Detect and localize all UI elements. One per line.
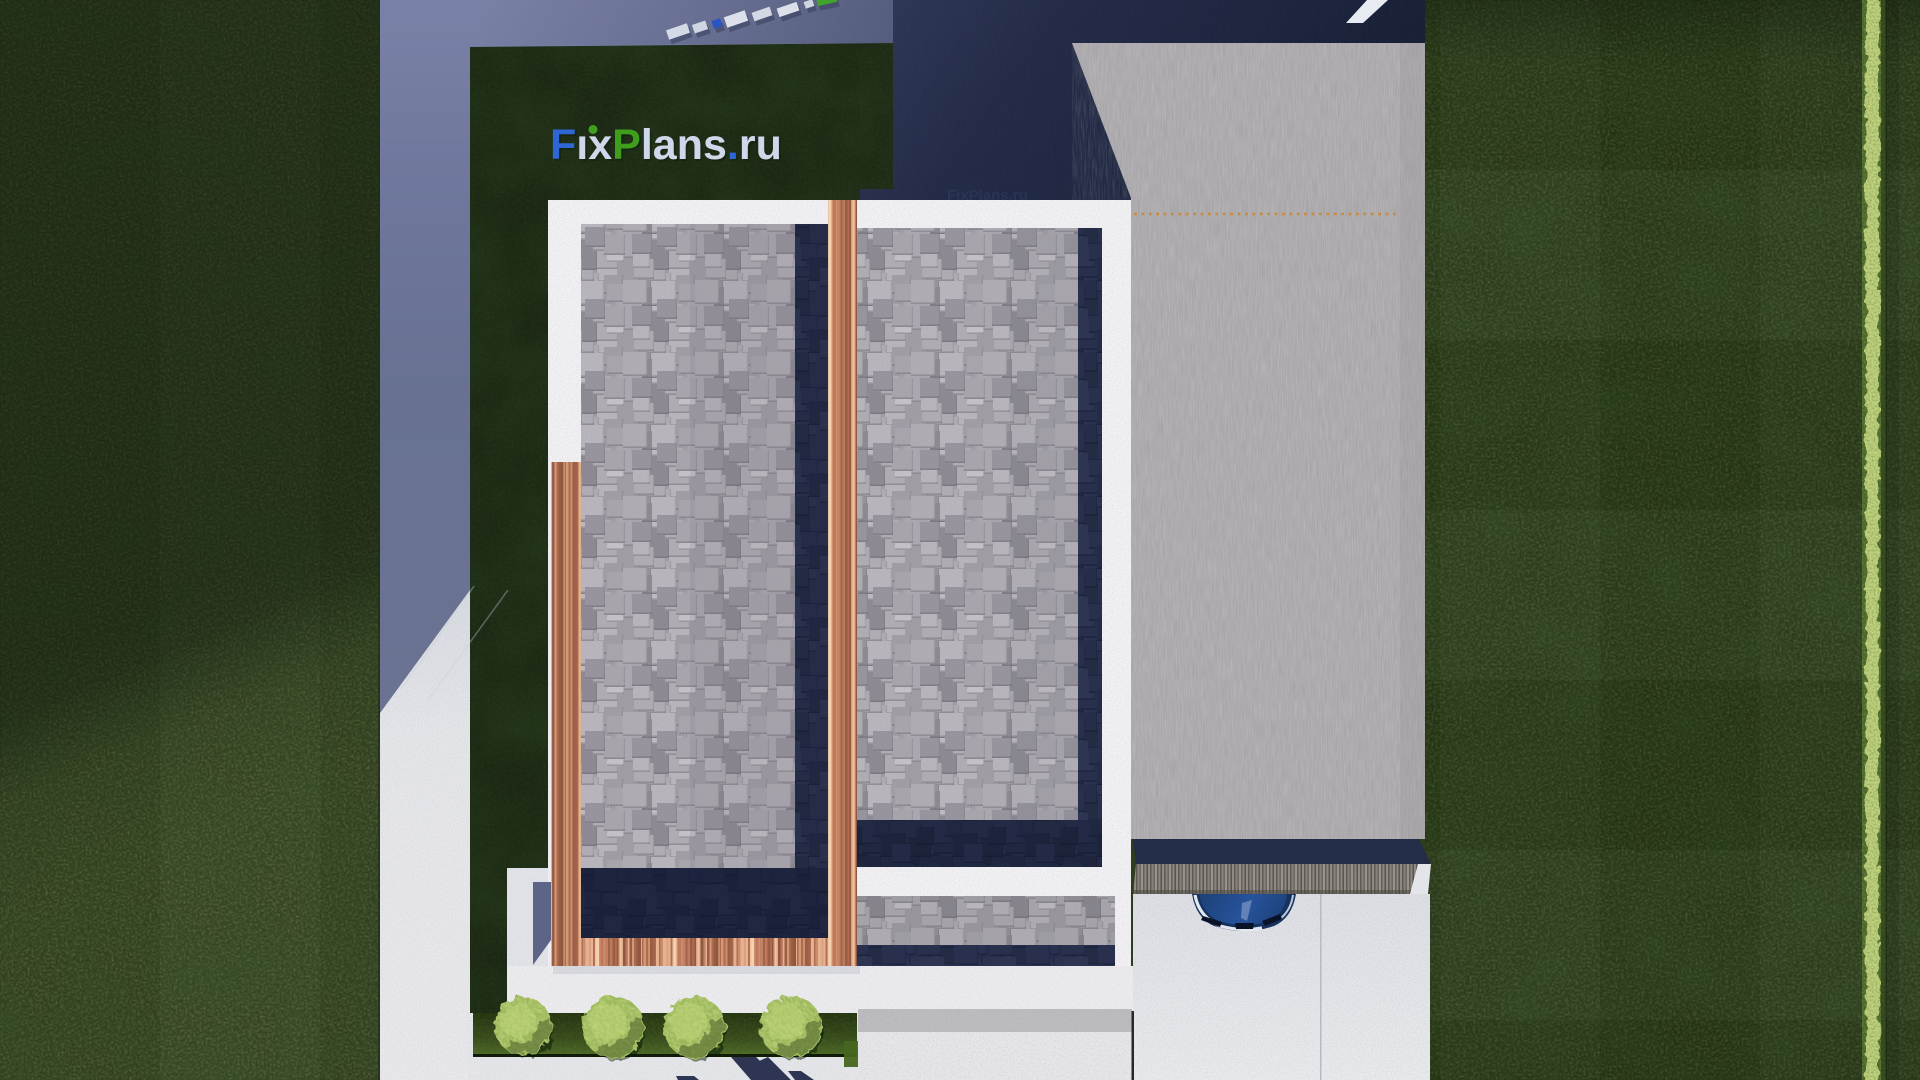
svg-text:FıxPlans.ru: FıxPlans.ru bbox=[550, 121, 782, 169]
